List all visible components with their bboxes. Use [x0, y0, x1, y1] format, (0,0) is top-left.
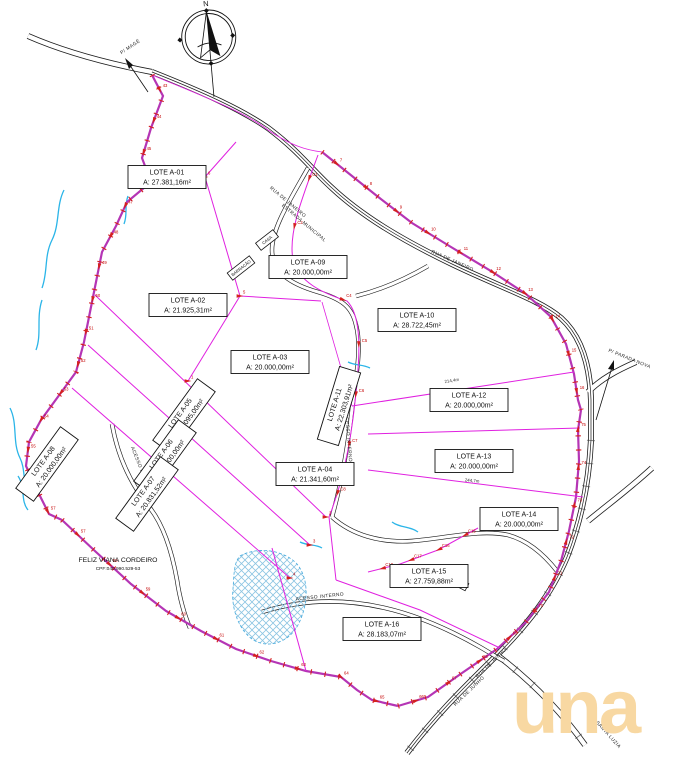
lot-name: LOTE A-15: [412, 569, 447, 576]
survey-point-label: C1: [312, 172, 318, 177]
lot-area: A: 21.341,60m²: [291, 477, 340, 484]
survey-point-label: 55: [31, 444, 36, 449]
lot-name: LOTE A-14: [502, 512, 537, 519]
lot-name: LOTE A-02: [171, 298, 206, 305]
lot-label-a-15: LOTE A-15A: 27.759,88m²: [390, 565, 468, 588]
owner-cpf: CPF:040.990.529-53: [96, 566, 141, 572]
survey-point-label: 61: [220, 632, 225, 637]
lot-area: A: 21.925,31m²: [164, 308, 213, 315]
lot-area: A: 20.000,00m²: [445, 403, 494, 410]
lot-area: A: 20.000,00m²: [284, 270, 333, 277]
survey-point-label: 14: [556, 313, 561, 318]
survey-point-label: 64: [344, 670, 349, 675]
survey-point-label: C17: [414, 553, 422, 558]
survey-point-label: 66: [419, 694, 424, 699]
owner-annotation: FELIZ VIANA CORDEIRO CPF:040.990.529-53: [79, 557, 158, 572]
survey-point-label: 9: [400, 205, 403, 210]
survey-point-label: 75: [581, 422, 586, 427]
survey-point: C16: [435, 543, 450, 553]
survey-point-label: 57: [81, 528, 86, 533]
road-label-rua-janeiro-2: RUA DE JANEIRO: [430, 249, 474, 273]
lot-label-a-10: LOTE A-10A: 28.722,45m²: [378, 309, 456, 332]
survey-point-label: 47: [128, 199, 133, 204]
lot-name: LOTE A-12: [452, 393, 487, 400]
compass-north-label: N: [203, 0, 209, 8]
lot-label-a-01: LOTE A-01A: 27.381,16m²: [128, 166, 206, 189]
lot-label-a-14: LOTE A-14A: 20.000,00m²: [480, 508, 558, 531]
lot-label-a-13: LOTE A-13A: 20.000,00m²: [435, 450, 513, 473]
lot-label-a-02: LOTE A-02A: 21.925,31m²: [149, 294, 227, 317]
survey-point-label: 67: [452, 676, 457, 681]
survey-point: 57: [74, 528, 86, 538]
survey-point-label: 72: [569, 535, 574, 540]
survey-point-label: 8: [370, 181, 373, 186]
lot-name: LOTE A-04: [298, 467, 333, 474]
survey-point-label: 73: [578, 498, 583, 503]
survey-point-label: 65: [380, 695, 385, 700]
survey-point: 67: [445, 676, 457, 686]
survey-point-label: C8: [340, 487, 346, 492]
lot-area: A: 20.000,00m²: [495, 522, 544, 529]
survey-point-label: 57: [51, 505, 56, 510]
survey-point-label: 50: [96, 293, 101, 298]
survey-point-label: 13: [528, 287, 533, 292]
survey-point: 53: [57, 386, 69, 396]
survey-point-label: 49: [102, 260, 107, 265]
survey-point: 66: [412, 694, 424, 703]
lot-area: A: 27.759,88m²: [405, 579, 454, 586]
lot-name: LOTE A-09: [291, 260, 326, 267]
una-watermark-logo: una: [512, 665, 642, 750]
survey-point-label: 52: [81, 358, 86, 363]
survey-point-label: 74: [582, 460, 587, 465]
survey-point-label: C16: [442, 543, 450, 548]
owner-name: FELIZ VIANA CORDEIRO: [79, 557, 158, 564]
survey-point-label: 51: [89, 326, 94, 331]
survey-point-label: 62: [260, 649, 265, 654]
lot-name: LOTE A-10: [400, 313, 435, 320]
lot-label-a-09: LOTE A-09A: 20.000,00m²: [269, 256, 347, 279]
direction-arrow-east: P/ PARADA NOVA: [596, 348, 652, 420]
lot-name: LOTE A-16: [365, 622, 400, 629]
survey-point-label: 59: [146, 587, 151, 592]
survey-point-label: 48: [114, 229, 119, 234]
lot-area: A: 20.000,00m²: [246, 365, 295, 372]
survey-point-label: C5: [362, 338, 368, 343]
lot-name: LOTE A-03: [253, 355, 288, 362]
survey-point-label: 54: [44, 413, 49, 418]
lot-area: A: 27.381,16m²: [143, 180, 192, 187]
survey-point-label: 44: [157, 114, 162, 119]
survey-point: C1: [306, 172, 318, 182]
lot-area: A: 28.183,07m²: [358, 632, 407, 639]
survey-point-label: 12: [496, 266, 501, 271]
lot-name: LOTE A-13: [457, 454, 492, 461]
survey-point-label: 15: [572, 348, 577, 353]
lot-area: A: 20.000,00m²: [450, 464, 499, 471]
lot-label-a-03: LOTE A-03A: 20.000,00m²: [231, 351, 309, 374]
survey-point-label: C15: [468, 529, 476, 534]
survey-point-label: C7: [352, 438, 358, 443]
survey-point-label: 45: [147, 146, 152, 151]
site-plan-map: 4344454647484950515253545556577891011121…: [0, 0, 690, 768]
survey-point: C17: [407, 553, 422, 562]
survey-point-label: 71: [558, 571, 563, 576]
direction-arrow-label: P/ MAGÉ: [119, 37, 142, 56]
survey-point-label: 11: [464, 246, 469, 251]
survey-point-label: C6: [359, 388, 365, 393]
survey-point-label: 69: [513, 631, 518, 636]
road-label-estrada: ESTRADA MUNICIPAL: [280, 203, 327, 244]
survey-point-label: 7: [340, 157, 343, 162]
survey-point-label: 70: [539, 603, 544, 608]
dimension-label: 214,4m: [444, 377, 460, 384]
lot-area: A: 28.722,45m²: [393, 323, 442, 330]
survey-point-label: 5: [243, 289, 246, 294]
survey-point-label: 63: [301, 662, 306, 667]
survey-point-label: 68: [483, 654, 488, 659]
survey-point-label: 43: [163, 83, 168, 88]
survey-point-label: 3: [313, 538, 316, 543]
survey-point-label: 10: [431, 226, 436, 231]
survey-point-label: 16: [580, 385, 585, 390]
site-plan-page: 4344454647484950515253545556577891011121…: [0, 0, 690, 768]
lot-name: LOTE A-01: [150, 170, 185, 177]
survey-point-label: 1: [191, 374, 194, 379]
survey-point-label: 53: [64, 386, 69, 391]
lot-label-a-08: LOTE A-08A: 20.000,00m²: [16, 427, 78, 501]
lot-label-a-16: LOTE A-16A: 28.183,07m²: [343, 618, 421, 641]
survey-point-label: C4: [346, 293, 352, 298]
lot-label-a-12: LOTE A-12A: 20.000,00m²: [430, 389, 508, 412]
survey-point-label: 60: [181, 612, 186, 617]
lot-label-a-04: LOTE A-04A: 21.341,60m²: [276, 463, 354, 486]
